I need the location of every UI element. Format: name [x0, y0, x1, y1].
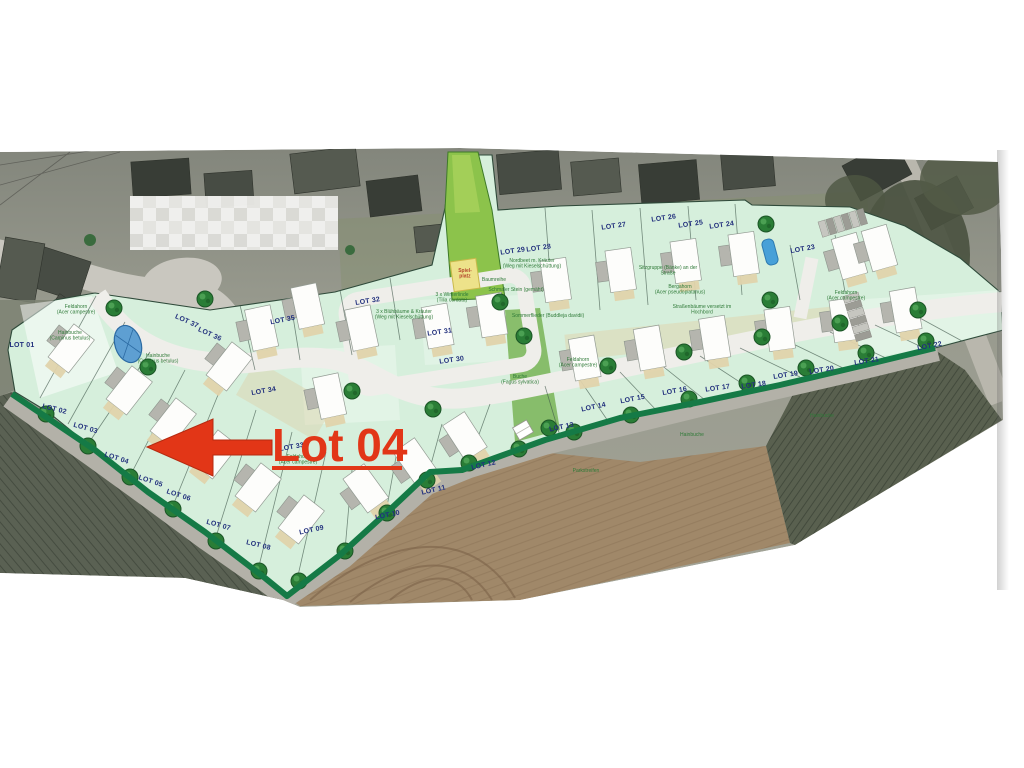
tree-icon	[758, 216, 774, 232]
tree-icon	[754, 329, 770, 345]
site-plan-page: LOT 01LOT 02LOT 03LOT 04LOT 05LOT 06LOT …	[0, 0, 1024, 768]
tree-icon	[910, 302, 926, 318]
aerial-photo: LOT 01LOT 02LOT 03LOT 04LOT 05LOT 06LOT …	[0, 139, 1010, 607]
plan-annotation: Sommerflieder (Buddleja davidii)	[512, 313, 585, 319]
tree-icon	[676, 344, 692, 360]
lot-label: LOT 01	[10, 342, 35, 349]
plan-annotation: Nordbeet m. Kräuter(Weg mit Kieselschütt…	[503, 258, 562, 270]
tree-icon	[516, 328, 532, 344]
site-plan-figure: LOT 01LOT 02LOT 03LOT 04LOT 05LOT 06LOT …	[0, 0, 1024, 768]
plan-annotation: Hainbuche	[810, 413, 834, 419]
tree-icon	[106, 300, 122, 316]
tree-icon	[492, 294, 508, 310]
plan-annotation: 3 x Winterlinde(Tilia cordata)	[435, 292, 468, 304]
plan-annotation: Spiel-platz	[458, 268, 472, 280]
tree-icon	[425, 401, 441, 417]
scan-edge-shadow	[997, 150, 1009, 590]
tree-icon	[344, 383, 360, 399]
tree-icon	[600, 358, 616, 374]
privacy-blur-block	[130, 196, 338, 250]
tree-icon	[832, 315, 848, 331]
plan-annotation: Parkstreifen	[573, 468, 600, 474]
plan-annotation: Hainbuche	[680, 432, 704, 438]
tree-icon	[762, 292, 778, 308]
plan-annotation: Baumreihe	[482, 277, 506, 283]
lot04-underline	[272, 466, 402, 470]
plan-annotation: 3 x Blühbäume & Kräuter(Weg mit Kieselsc…	[375, 309, 434, 321]
lot04-callout-text: Lot 04	[272, 419, 408, 471]
tree-icon	[197, 291, 213, 307]
plan-annotation: Schmaler Stein (gemäht)	[488, 287, 544, 293]
